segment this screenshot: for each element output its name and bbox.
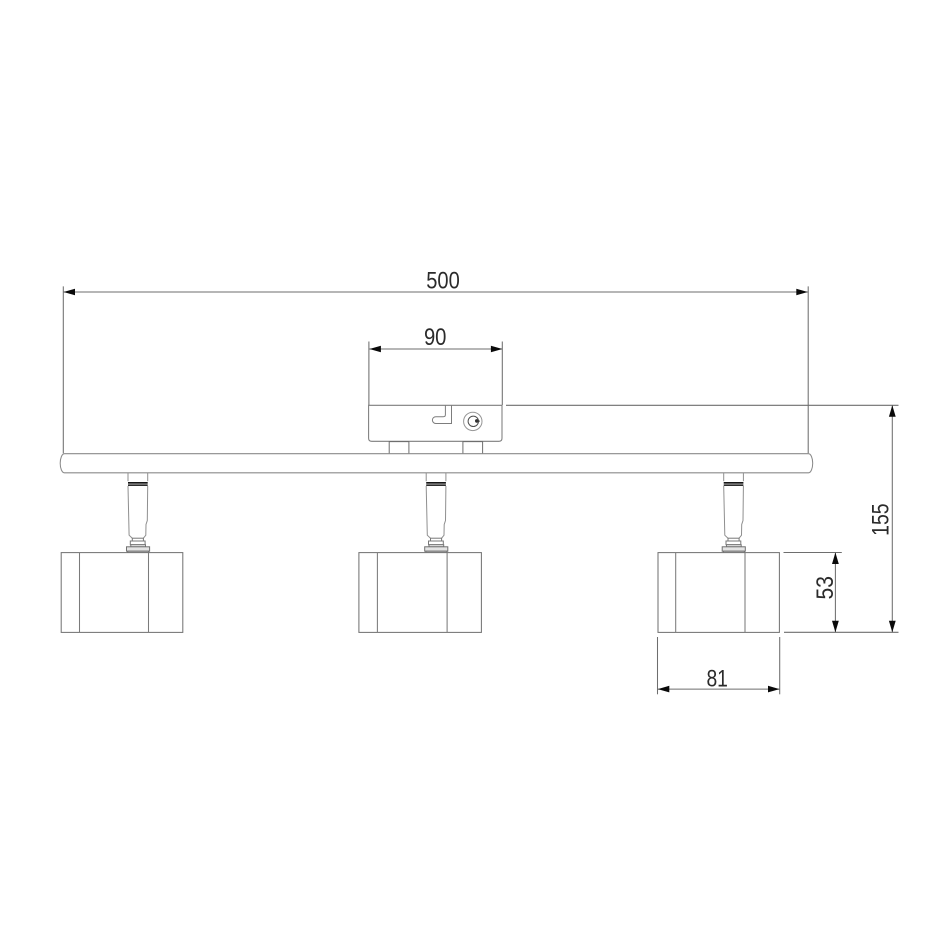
svg-text:500: 500	[426, 267, 460, 294]
svg-text:90: 90	[424, 324, 447, 351]
svg-text:155: 155	[867, 503, 894, 536]
svg-text:81: 81	[706, 665, 728, 692]
svg-text:53: 53	[812, 576, 839, 600]
